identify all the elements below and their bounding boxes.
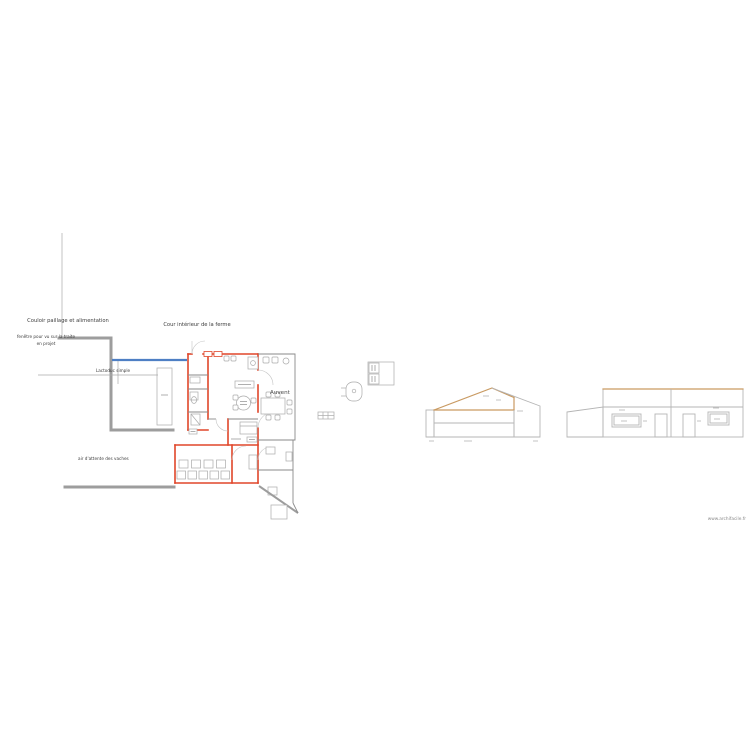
label-fenetre-line2: en projet xyxy=(37,341,56,346)
main-room-furniture xyxy=(224,356,258,442)
facade-window-left xyxy=(612,414,641,427)
facade-door-left xyxy=(655,414,667,437)
label-fenetre-line1: fenêtre pour vu sur la traite xyxy=(17,334,76,339)
label-couloir-paillage: Couloir paillage et alimentation xyxy=(27,318,109,324)
label-aire-attente: air d'attente des vaches xyxy=(78,456,129,461)
floorplan-svg: Couloir paillage et alimentation Cour in… xyxy=(0,0,750,750)
annex-rooms xyxy=(258,440,298,519)
feed-trough xyxy=(157,368,172,425)
auvent-area xyxy=(258,354,295,440)
footer-watermark: www.archifacile.fr xyxy=(708,516,747,522)
dimension-marks xyxy=(619,408,720,421)
legend-box xyxy=(368,362,394,385)
label-lactoduc: Lactoduc simple xyxy=(96,368,131,373)
scale-bar xyxy=(318,412,334,419)
facade-window-right xyxy=(708,412,729,425)
milking-stalls xyxy=(177,455,257,479)
facade-door-right xyxy=(683,414,695,437)
label-auvent: Auvent xyxy=(270,390,291,396)
sanitary-fixtures xyxy=(189,377,200,434)
elevation-facade xyxy=(567,389,743,437)
tank-symbol xyxy=(341,382,362,401)
label-cour-interieur: Cour intérieur de la ferme xyxy=(163,321,230,328)
elevation-cross-section xyxy=(426,388,540,441)
drawing-canvas: Couloir paillage et alimentation Cour in… xyxy=(0,0,750,750)
dimension-marks xyxy=(429,396,538,441)
